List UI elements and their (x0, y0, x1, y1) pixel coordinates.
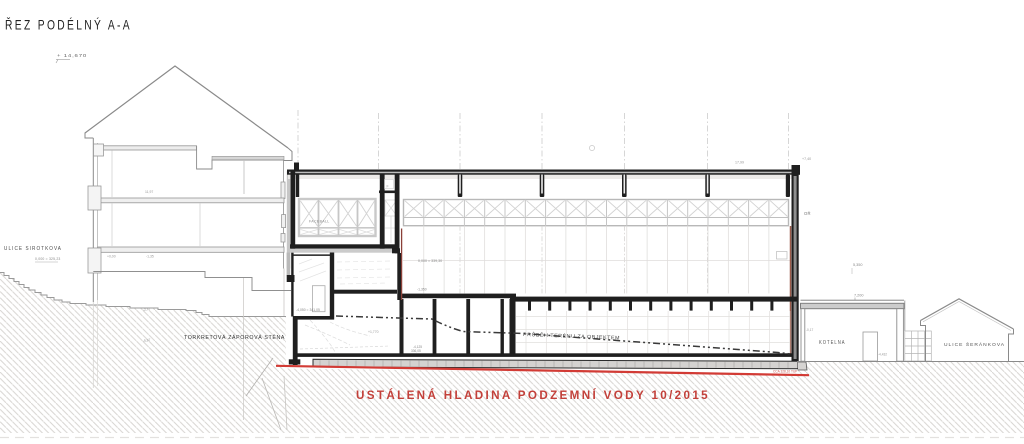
svg-text:CCA 328,10 TUP: CCA 328,10 TUP (773, 370, 797, 374)
svg-text:USTÁLENÁ HLADINA PODZEMNÍ VODY: USTÁLENÁ HLADINA PODZEMNÍ VODY 10/2015 (356, 387, 710, 402)
svg-text:0,000 = 339,30: 0,000 = 339,30 (418, 259, 442, 263)
svg-text:-1,35: -1,35 (146, 255, 154, 259)
svg-text:TORKRETOVÁ ZÁPOROVÁ STĚNA: TORKRETOVÁ ZÁPOROVÁ STĚNA (184, 333, 285, 341)
svg-text:11,97: 11,97 (145, 190, 153, 194)
svg-text:-4,432: -4,432 (878, 353, 887, 357)
svg-text:5,350: 5,350 (853, 263, 863, 267)
svg-text:0,000 = 325,23: 0,000 = 325,23 (35, 257, 61, 261)
svg-text:17,99: 17,99 (735, 161, 744, 165)
svg-text:+0,00: +0,00 (107, 255, 116, 259)
svg-text:ŘEZ PODÉLNÝ A-A: ŘEZ PODÉLNÝ A-A (5, 17, 132, 33)
svg-text:+ 14,670: + 14,670 (57, 53, 87, 58)
svg-text:-1,350: -1,350 (417, 288, 427, 292)
svg-text:F: F (387, 185, 389, 189)
svg-text:OŘ: OŘ (804, 211, 811, 216)
svg-text:ULICE ŠERÁNKOVA: ULICE ŠERÁNKOVA (944, 341, 1005, 348)
svg-text:+7,40: +7,40 (802, 157, 811, 161)
svg-text:336,05: 336,05 (411, 349, 421, 353)
svg-text:KOTELNA: KOTELNA (819, 340, 846, 346)
svg-text:-0,17: -0,17 (806, 328, 813, 332)
svg-text:-4,050 = 341,05: -4,050 = 341,05 (296, 308, 320, 312)
svg-text:+1,770: +1,770 (368, 330, 379, 334)
svg-text:7,200: 7,200 (854, 294, 864, 298)
svg-text:FACEBALL: FACEBALL (309, 220, 330, 224)
svg-text:ULICE SIROTKOVA: ULICE SIROTKOVA (4, 246, 62, 252)
